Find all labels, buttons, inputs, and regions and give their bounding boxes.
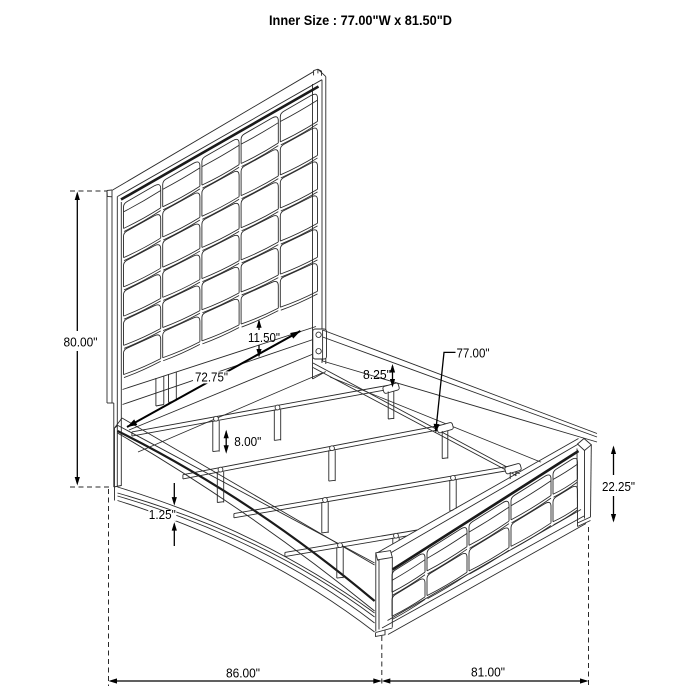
svg-text:72.75": 72.75": [195, 369, 228, 384]
svg-text:Inner Size : 77.00"W x 81.50"D: Inner Size : 77.00"W x 81.50"D: [269, 13, 452, 29]
svg-text:80.00": 80.00": [64, 335, 98, 350]
svg-text:77.00": 77.00": [457, 346, 490, 361]
svg-text:11.50": 11.50": [248, 330, 280, 345]
svg-text:8.25": 8.25": [363, 367, 391, 382]
svg-text:1.25": 1.25": [149, 507, 176, 522]
svg-text:22.25": 22.25": [602, 479, 635, 494]
svg-text:81.00": 81.00": [471, 665, 505, 680]
svg-text:8.00": 8.00": [234, 434, 261, 449]
svg-text:86.00": 86.00": [226, 666, 260, 681]
